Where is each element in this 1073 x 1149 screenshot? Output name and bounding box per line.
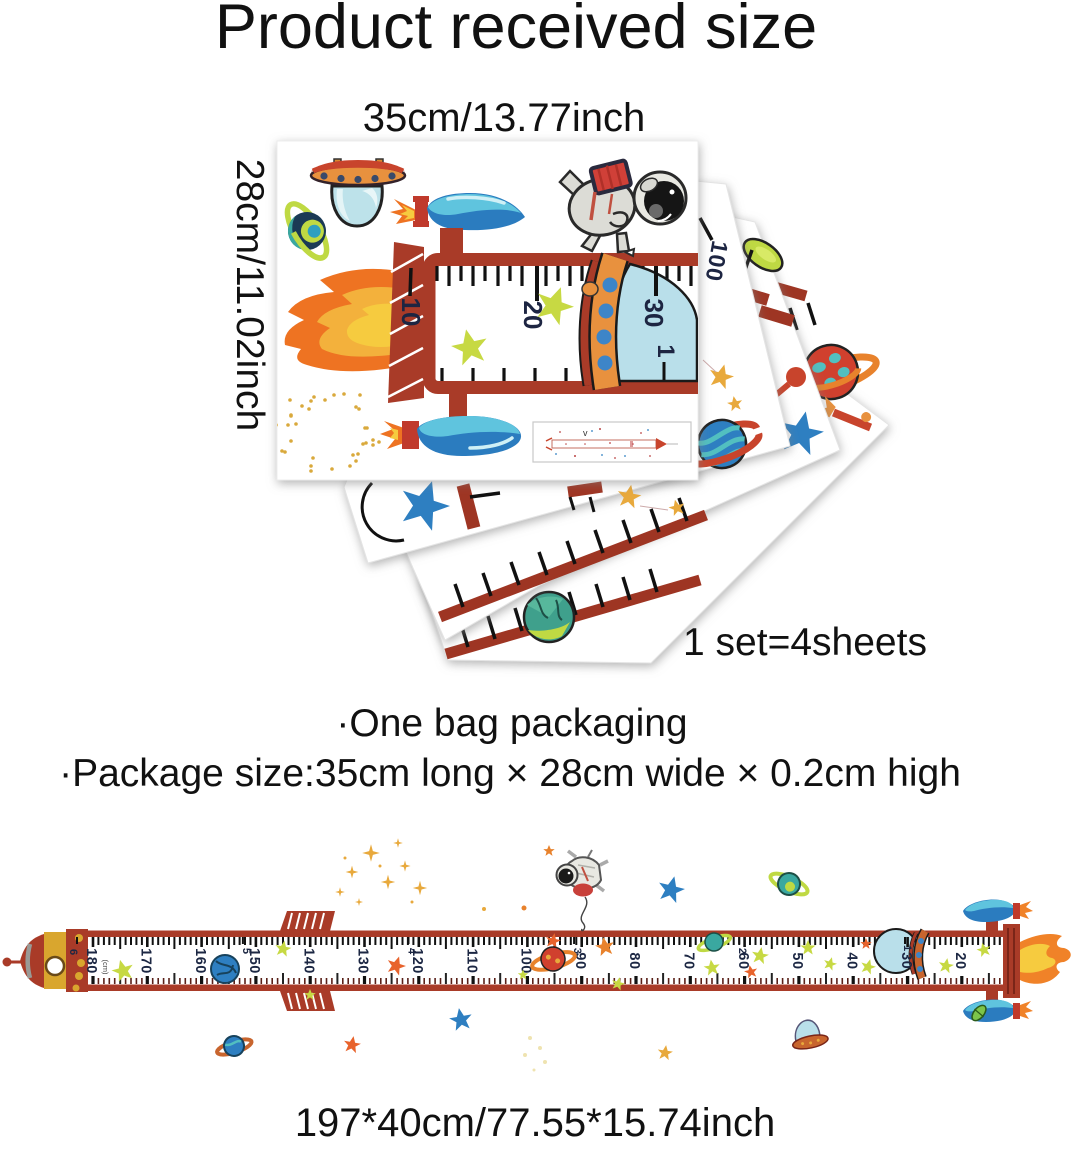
- svg-text:·Package size:35cm long × 28cm: ·Package size:35cm long × 28cm wide × 0.…: [59, 752, 961, 795]
- svg-text:160: 160: [192, 948, 208, 974]
- svg-text:180: 180: [83, 948, 99, 974]
- svg-text:5: 5: [240, 948, 252, 954]
- svg-text:40: 40: [843, 952, 859, 969]
- svg-text:2: 2: [736, 948, 748, 954]
- svg-text:70: 70: [681, 952, 697, 969]
- svg-text:170: 170: [138, 948, 154, 974]
- svg-text:35cm/13.77inch: 35cm/13.77inch: [363, 96, 645, 140]
- svg-text:110: 110: [463, 949, 479, 974]
- svg-text:197*40cm/77.55*15.74inch: 197*40cm/77.55*15.74inch: [295, 1101, 775, 1145]
- svg-text:130: 130: [355, 948, 371, 974]
- svg-text:140: 140: [300, 948, 316, 974]
- svg-text:4: 4: [406, 948, 418, 955]
- svg-text:1: 1: [652, 344, 679, 357]
- svg-text:1: 1: [901, 945, 913, 951]
- svg-text:30: 30: [639, 299, 669, 328]
- svg-text:100: 100: [518, 948, 534, 974]
- svg-text:28cm/11.02inch: 28cm/11.02inch: [228, 159, 271, 431]
- svg-text:30: 30: [898, 952, 914, 969]
- svg-text:10: 10: [396, 298, 426, 327]
- svg-text:Product received size: Product received size: [215, 0, 817, 62]
- svg-text:60: 60: [735, 952, 751, 969]
- svg-text:50: 50: [789, 952, 805, 969]
- svg-text:1 set=4sheets: 1 set=4sheets: [683, 621, 927, 664]
- svg-text:v: v: [583, 428, 588, 438]
- svg-text:80: 80: [626, 952, 642, 969]
- svg-text:6: 6: [67, 949, 79, 955]
- svg-text:·One bag packaging: ·One bag packaging: [336, 702, 687, 745]
- svg-text:20: 20: [952, 952, 968, 969]
- svg-text:(cm): (cm): [101, 960, 110, 975]
